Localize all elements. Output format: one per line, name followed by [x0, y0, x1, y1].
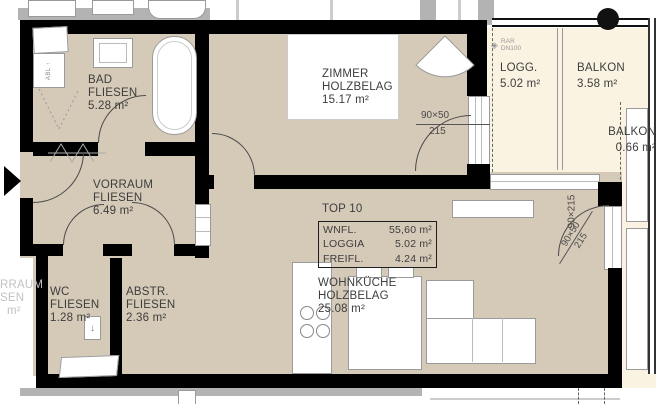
room-finish: HOLZBELAG — [318, 290, 396, 303]
neighbor-sink — [92, 0, 134, 15]
neighbor-wall-block — [420, 0, 436, 20]
window-zimmer-loggia — [468, 96, 490, 166]
room-label-balkon: BALKON 3.58 m² — [577, 60, 625, 92]
wall-left-mid — [20, 198, 33, 244]
neighbor-wall-line — [458, 0, 461, 20]
bathroom-cabinet — [32, 26, 68, 54]
glazing-line — [475, 97, 476, 165]
burner-icon — [316, 324, 330, 338]
room-area: 2.36 m² — [126, 312, 175, 325]
room-label-zimmer: ZIMMER HOLZBELAG 15.17 m² — [322, 68, 393, 107]
room-name: LOGG. — [500, 60, 540, 76]
wall-vorraum-bottom — [103, 244, 132, 256]
unit-summary-box: WNFL. 55,60 m² LOGGIA 5.02 m² FREIFL. 4.… — [318, 221, 437, 268]
room-label-abstr: ABSTR. FLIESEN 2.36 m² — [126, 286, 175, 325]
drain-annotation: ◈ RAR DN100 — [491, 38, 521, 52]
dimension-line — [416, 124, 490, 125]
glazing-line — [612, 207, 613, 269]
sofa-seam — [472, 318, 473, 362]
room-name: BALKON — [596, 124, 656, 140]
wall-right — [608, 268, 622, 374]
neighbor-left-line1: RRAUM — [0, 279, 43, 292]
room-finish: FLIESEN — [126, 299, 175, 312]
wall-corner-block — [598, 182, 622, 206]
glazing-line — [491, 181, 599, 182]
neighbor-terrace-line — [430, 398, 620, 400]
dashed-line — [578, 388, 579, 404]
neighbor-bottom-wall — [20, 388, 422, 396]
room-finish: FLIESEN — [50, 299, 99, 312]
wall-bottom — [36, 374, 622, 388]
dashed-line — [604, 388, 605, 404]
room-label-loggia: LOGG. 5.02 m² — [500, 60, 540, 92]
washer-label: ABL ↑ — [46, 61, 52, 79]
unit-title: TOP 10 — [322, 203, 362, 216]
wall-zimmer-bottom — [254, 175, 467, 189]
room-name: VORRAUM — [93, 179, 153, 192]
summary-label: WNFL. — [323, 224, 357, 236]
room-label-wc: WC FLIESEN 1.28 m² — [50, 286, 99, 325]
room-area: 15.17 m² — [322, 94, 393, 107]
room-name: ZIMMER — [322, 68, 393, 81]
wall-bad-bottom-right — [145, 142, 209, 156]
room-area: 3.58 m² — [577, 76, 625, 92]
wall-vorraum-bottom — [174, 244, 195, 256]
summary-value: 55,60 m² — [389, 224, 432, 236]
summary-value: 4.24 m² — [395, 253, 432, 265]
neighbor-bathtub — [148, 0, 206, 19]
room-area: 25.08 m² — [318, 303, 396, 316]
bathtub-inner — [157, 41, 192, 130]
washing-machine: ABL ↑ — [33, 53, 65, 88]
neighbor-wall-line — [236, 0, 239, 20]
entrance-arrow-icon — [4, 166, 21, 196]
door-frame-line — [196, 231, 210, 232]
summary-value: 5.02 m² — [395, 238, 432, 250]
balcony-railing-top — [492, 18, 656, 27]
door-frame-line — [196, 217, 210, 218]
room-area: 0.66 m² — [596, 140, 656, 156]
room-area: 6.49 m² — [93, 205, 153, 218]
neighbor-left-line2: SEN — [0, 292, 43, 305]
room-name: BALKON — [577, 60, 625, 76]
room-name: ABSTR. — [126, 286, 175, 299]
room-finish: FLIESEN — [88, 87, 137, 100]
room-label-balkon2: BALKON 0.66 m² — [596, 124, 656, 156]
room-name: BAD — [88, 74, 137, 87]
glazing-line — [481, 97, 482, 165]
room-name: WOHNKÜCHE — [318, 277, 396, 290]
burner-icon — [300, 306, 314, 320]
room-name: WC — [50, 286, 99, 299]
wall-left-upper — [20, 20, 33, 152]
wall-vorraum-bottom — [33, 244, 63, 256]
room-area: 5.28 m² — [88, 100, 137, 113]
shower-dotted-lines — [36, 86, 82, 134]
room-finish: HOLZBELAG — [322, 81, 393, 94]
sink-basin — [99, 43, 127, 63]
window-dim-parapet: 215 — [429, 126, 446, 137]
window-dim-size: 90×50 — [421, 110, 449, 121]
balcony-railing-right — [648, 18, 656, 374]
wall-zimmer-bottom — [209, 175, 214, 189]
sideboard — [452, 200, 534, 218]
window-wohnkueche-loggia — [490, 174, 600, 190]
drain-line2: DN100 — [501, 45, 521, 52]
railing-panel — [626, 228, 648, 370]
summary-row: FREIFL. 4.24 m² — [323, 253, 432, 265]
summary-label: FREIFL. — [323, 253, 364, 265]
neighbor-wall-line — [330, 0, 333, 20]
neighbor-bottom-pier — [178, 390, 196, 404]
floor-plan: RRAUM SEN m² ABL — [0, 0, 664, 404]
neighbor-left-label: RRAUM SEN m² — [0, 279, 43, 318]
neighbor-left-line3: m² — [0, 305, 43, 318]
summary-row: WNFL. 55,60 m² — [323, 224, 432, 236]
drain-text: RAR DN100 — [501, 38, 521, 52]
burner-icon — [300, 324, 314, 338]
room-finish: FLIESEN — [93, 192, 153, 205]
room-area: 5.02 m² — [500, 76, 540, 92]
door-vorraum-wohnkueche — [195, 204, 211, 246]
bathroom-sink — [93, 38, 133, 68]
summary-row: LOGGIA 5.02 m² — [323, 238, 432, 250]
sofa-horizontal — [426, 318, 536, 364]
summary-label: LOGGIA — [323, 238, 364, 250]
drain-icon: ◈ — [491, 40, 498, 51]
room-label-wohnkueche: WOHNKÜCHE HOLZBELAG 25.08 m² — [318, 277, 396, 316]
drain-line1: RAR — [501, 38, 521, 45]
room-area: 1.28 m² — [50, 312, 99, 325]
loggia-balkon-divider — [557, 28, 563, 170]
column — [597, 8, 619, 30]
room-label-vorraum: VORRAUM FLIESEN 6.49 m² — [93, 179, 153, 218]
washbasin — [59, 355, 119, 378]
sofa-seam — [502, 318, 503, 362]
bathtub — [152, 36, 197, 135]
wall-top — [20, 20, 487, 34]
room-label-bad: BAD FLIESEN 5.28 m² — [88, 74, 137, 113]
neighbor-fixture — [28, 0, 76, 17]
